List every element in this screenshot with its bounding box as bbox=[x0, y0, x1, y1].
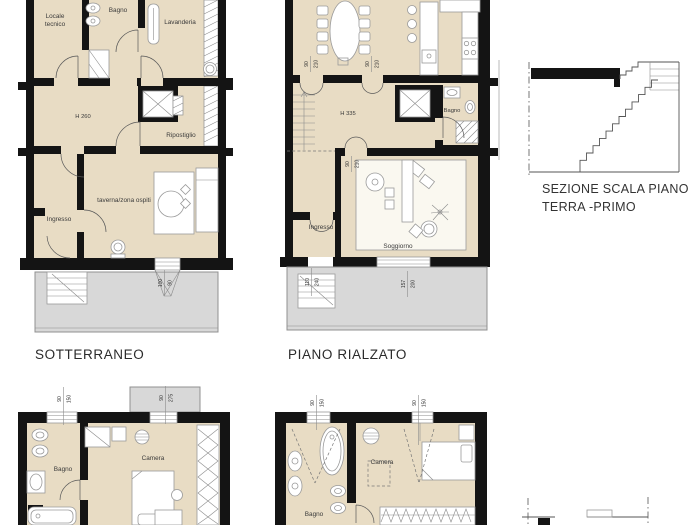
elevator-shaft bbox=[138, 86, 183, 122]
section-caption-line2: TERRA -PRIMO bbox=[542, 200, 636, 214]
section-scala: SEZIONE SCALA PIANO TERRA -PRIMO bbox=[518, 50, 700, 225]
height-label: H 335 bbox=[340, 111, 355, 117]
living-room-set bbox=[356, 160, 466, 250]
wardrobe bbox=[197, 425, 219, 525]
room-label-bagno: Bagno bbox=[305, 511, 324, 518]
dim-width: 90 bbox=[304, 61, 310, 67]
section-slab bbox=[531, 68, 620, 87]
plan-title-sotterraneo: SOTTERRANEO bbox=[35, 347, 144, 362]
floor-plan-sheet: 100 90 Locale tecnico Bagno Lavanderia H… bbox=[0, 0, 700, 525]
room-label-camera: Camera bbox=[371, 459, 394, 466]
room-label-camera: Camera bbox=[142, 455, 165, 462]
dim-height: 210 bbox=[355, 160, 361, 169]
dim-height: 240 bbox=[315, 278, 321, 287]
elevator-shaft bbox=[395, 85, 435, 122]
section-caption-line1: SEZIONE SCALA PIANO bbox=[542, 182, 689, 196]
room-label-bagno: Bagno bbox=[54, 466, 73, 473]
room-label-lavanderia: Lavanderia bbox=[164, 19, 196, 26]
room-label-taverna: taverna/zona ospiti bbox=[97, 197, 151, 204]
dim-height: 150 bbox=[320, 399, 326, 408]
room-label-bagno: Bagno bbox=[109, 7, 128, 14]
room-label-locale-tecnico-2: tecnico bbox=[45, 21, 66, 28]
terrace-rialzato bbox=[287, 257, 487, 330]
wardrobe bbox=[380, 507, 475, 525]
dim-width: 100 bbox=[158, 279, 164, 288]
room-label-bagno: Bagno bbox=[444, 108, 461, 114]
dim-width: 90 bbox=[365, 61, 371, 67]
dim-height: 210 bbox=[375, 60, 381, 69]
dim-height: 200 bbox=[411, 280, 417, 289]
plan-title-piano-rialzato: PIANO RIALZATO bbox=[288, 347, 407, 362]
plan-piano-primo-left: 90 150 90 275 bbox=[14, 383, 234, 525]
dim-width: 90 bbox=[57, 396, 63, 402]
dim-width: 90 bbox=[310, 400, 316, 406]
dim-width: 157 bbox=[401, 280, 407, 289]
dim-height: 90 bbox=[168, 280, 174, 286]
room-label-soggiorno: Soggiorno bbox=[383, 243, 413, 250]
dim-width: 90 bbox=[159, 395, 165, 401]
height-label: H 260 bbox=[75, 114, 90, 120]
room-label-ingresso: Ingresso bbox=[309, 224, 334, 231]
dim-height: 210 bbox=[314, 60, 320, 69]
room-label-locale-tecnico: Locale bbox=[46, 13, 65, 20]
dim-height: 150 bbox=[422, 399, 428, 408]
room-label-ripostiglio: Ripostiglio bbox=[166, 132, 196, 139]
dim-width: 110 bbox=[305, 278, 311, 286]
fragment-section-right bbox=[587, 497, 648, 525]
plan-piano-rialzato: 90 210 90 210 90 210 110 240 157 200 H 3… bbox=[278, 0, 508, 368]
dim-width: 90 bbox=[345, 161, 351, 167]
fragment-sections bbox=[515, 492, 700, 525]
dim-width: 90 bbox=[412, 400, 418, 406]
room-label-ingresso: Ingresso bbox=[47, 216, 72, 223]
dim-height: 275 bbox=[169, 394, 175, 403]
dim-height: 150 bbox=[67, 395, 73, 404]
plan-sotterraneo: 100 90 Locale tecnico Bagno Lavanderia H… bbox=[14, 0, 236, 368]
plan-piano-primo-right: 90 150 90 150 bbox=[268, 395, 503, 525]
fragment-section-left bbox=[522, 498, 555, 525]
